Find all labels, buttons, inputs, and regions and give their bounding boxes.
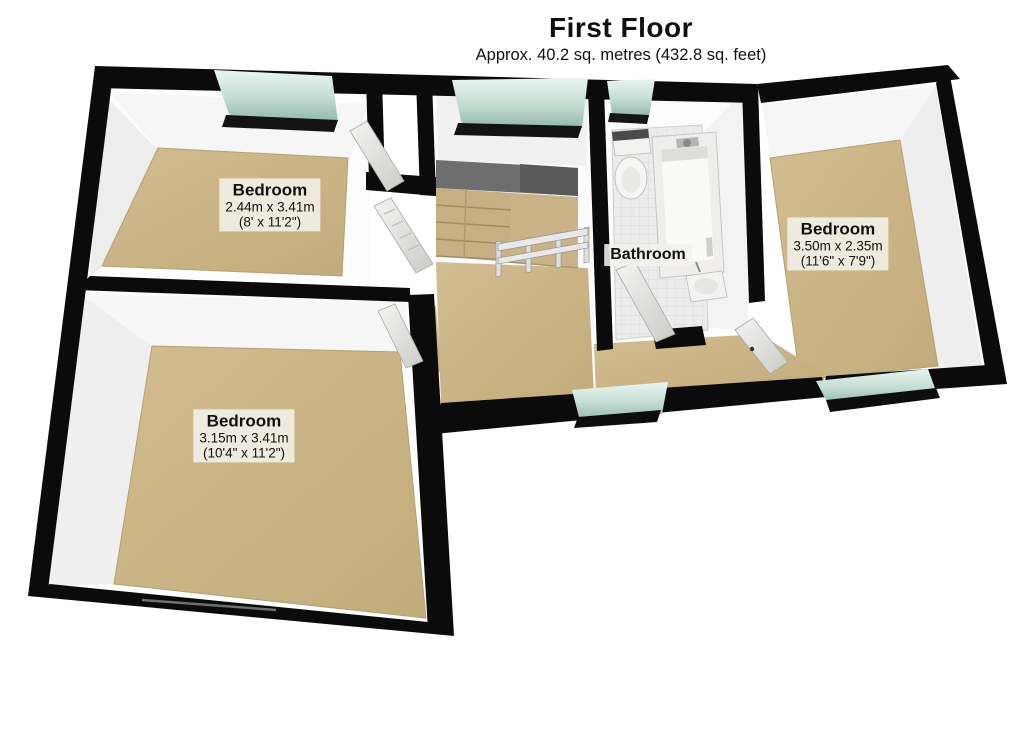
bedroom3-metric: 3.15m x 3.41m xyxy=(199,430,288,445)
bedroom1-metric: 2.44m x 3.41m xyxy=(225,199,314,214)
bedroom2-label: Bedroom 3.50m x 2.35m (11'6" x 7'9") xyxy=(787,217,888,270)
landing-window-glass xyxy=(452,78,588,128)
bedroom3-name: Bedroom xyxy=(199,411,288,430)
bathtub-handle xyxy=(706,237,713,257)
bathroom-label: Bathroom xyxy=(604,244,692,266)
bathroom-window-glass xyxy=(607,79,655,117)
bedroom3-floor xyxy=(114,346,426,618)
stairwell-back-wall-dark xyxy=(520,164,578,196)
bedroom2-imperial: (11'6" x 7'9") xyxy=(793,254,882,269)
floorplan-canvas xyxy=(0,0,1024,744)
bedroom2-door-handle xyxy=(750,347,754,351)
bathtub-tap xyxy=(683,139,691,147)
bedroom3-label: Bedroom 3.15m x 3.41m (10'4" x 11'2") xyxy=(193,409,294,462)
bedroom3-imperial: (10'4" x 11'2") xyxy=(199,446,288,461)
bedroom2-metric: 3.50m x 2.35m xyxy=(793,238,882,253)
bedroom1-label: Bedroom 2.44m x 3.41m (8' x 11'2") xyxy=(219,178,320,231)
bedroom1-door xyxy=(374,198,433,273)
sink-basin xyxy=(694,278,718,294)
bedroom1-imperial: (8' x 11'2") xyxy=(225,215,314,230)
toilet-seat xyxy=(622,167,641,193)
bedroom2-name: Bedroom xyxy=(793,219,882,238)
bedroom1-name: Bedroom xyxy=(225,180,314,199)
landing-floor xyxy=(436,262,594,404)
bathroom-name: Bathroom xyxy=(610,246,686,264)
bedroom1-window-glass xyxy=(214,70,338,122)
